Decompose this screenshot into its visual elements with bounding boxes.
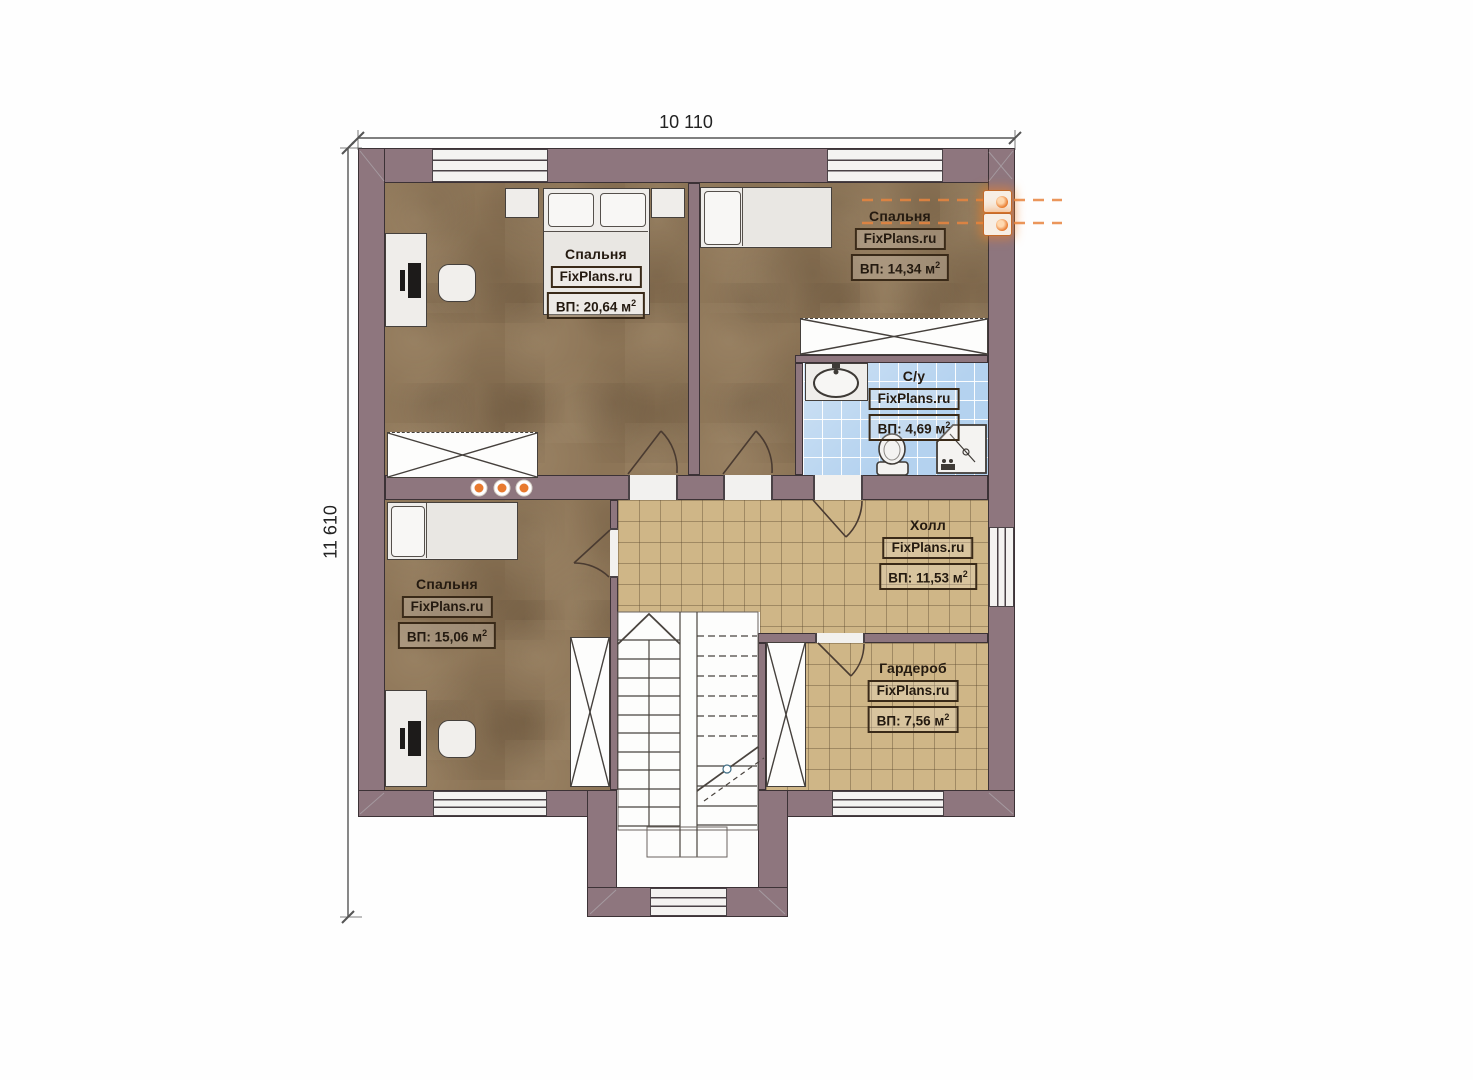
area-sup: 2: [963, 569, 968, 579]
radiator-icon: [983, 190, 1012, 213]
brand-box: FixPlans.ru: [402, 596, 493, 618]
brand-box: FixPlans.ru: [551, 266, 642, 288]
sink-counter: [805, 363, 868, 401]
area-box: ВП: 7,56 м2: [868, 706, 959, 733]
keyboard-icon: [400, 728, 405, 749]
brand-box: FixPlans.ru: [883, 537, 974, 559]
desk: [385, 690, 427, 787]
monitor-icon: [408, 263, 421, 298]
floor-plan-canvas: Спальня FixPlans.ru ВП: 20,64 м2 Спальня…: [0, 0, 1473, 1080]
area-sup: 2: [944, 712, 949, 722]
dimension-height-label: 11 610: [321, 505, 342, 559]
blanket: [742, 188, 831, 246]
wall-stairwell-right: [758, 643, 766, 790]
radiator-icon: [983, 213, 1012, 236]
dimension-width-label: 10 110: [659, 112, 713, 133]
room-label-bedroom-top-left: Спальня FixPlans.ru ВП: 20,64 м2: [547, 246, 645, 319]
wall-bathroom-top: [795, 355, 988, 363]
brand-box: FixPlans.ru: [868, 680, 959, 702]
area-text: ВП: 4,69 м: [878, 422, 946, 437]
brand-text: FixPlans.ru: [892, 540, 965, 555]
window-hall-right: [989, 527, 1014, 607]
floor-stair-landing: [617, 790, 758, 887]
wall-bedroom-separator: [688, 183, 700, 475]
area-text: ВП: 11,53 м: [888, 571, 962, 586]
pillow: [548, 193, 594, 227]
room-label-bedroom-bottom-left: Спальня FixPlans.ru ВП: 15,06 м2: [398, 576, 496, 649]
door-opening-bedroom-top-right: [723, 475, 773, 500]
room-title: Спальня: [416, 576, 478, 592]
pillow: [704, 191, 741, 245]
monitor-icon: [408, 721, 421, 756]
room-title: Спальня: [869, 208, 931, 224]
brand-text: FixPlans.ru: [411, 599, 484, 614]
door-opening-bathroom: [813, 475, 863, 500]
room-label-bedroom-top-right: Спальня FixPlans.ru ВП: 14,34 м2: [851, 208, 949, 281]
area-box: ВП: 4,69 м2: [869, 414, 960, 441]
area-sup: 2: [935, 260, 940, 270]
brand-box: FixPlans.ru: [855, 228, 946, 250]
room-title: Холл: [910, 517, 946, 533]
window-top-right: [827, 149, 943, 182]
room-title: Спальня: [565, 246, 627, 262]
window-bump: [650, 888, 727, 916]
area-sup: 2: [482, 628, 487, 638]
blanket: [426, 503, 517, 558]
room-title: С/у: [903, 368, 925, 384]
closet-cabinet: [766, 642, 806, 787]
pillow: [600, 193, 646, 227]
room-title: Гардероб: [879, 660, 947, 676]
brand-text: FixPlans.ru: [877, 683, 950, 698]
pillow: [391, 506, 425, 557]
room-label-hall: Холл FixPlans.ru ВП: 11,53 м2: [879, 517, 977, 590]
single-bed: [387, 502, 518, 560]
area-sup: 2: [945, 420, 950, 430]
area-box: ВП: 14,34 м2: [851, 254, 949, 281]
area-sup: 2: [631, 298, 636, 308]
door-opening-wardrobe: [815, 633, 865, 643]
door-opening-bedroom-top-left: [628, 475, 678, 500]
office-chair: [438, 264, 476, 302]
area-text: ВП: 20,64 м: [556, 300, 631, 315]
brand-text: FixPlans.ru: [864, 231, 937, 246]
single-bed: [700, 187, 832, 248]
wall-exterior-right: [988, 148, 1015, 817]
area-text: ВП: 15,06 м: [407, 630, 482, 645]
desk: [385, 233, 427, 327]
wall-corridor: [385, 475, 988, 500]
wardrobe-cabinet: [387, 432, 538, 478]
wall-exterior-left: [358, 148, 385, 817]
brand-text: FixPlans.ru: [560, 269, 633, 284]
window-top-left: [432, 149, 548, 182]
brand-text: FixPlans.ru: [878, 391, 951, 406]
nightstand-right: [651, 188, 685, 218]
nightstand-left: [505, 188, 539, 218]
area-box: ВП: 11,53 м2: [879, 563, 977, 590]
area-box: ВП: 20,64 м2: [547, 292, 645, 319]
door-opening-bedroom-bottom-left: [610, 528, 618, 578]
window-bottom-right: [832, 791, 944, 816]
area-box: ВП: 15,06 м2: [398, 622, 496, 649]
room-label-bathroom: С/у FixPlans.ru ВП: 4,69 м2: [869, 368, 960, 441]
wall-bathroom-left: [795, 363, 803, 475]
area-text: ВП: 14,34 м: [860, 262, 935, 277]
keyboard-icon: [400, 270, 405, 291]
floor-hall-left: [618, 500, 760, 612]
brand-box: FixPlans.ru: [869, 388, 960, 410]
room-label-wardrobe: Гардероб FixPlans.ru ВП: 7,56 м2: [868, 660, 959, 733]
wardrobe-cabinet: [800, 318, 988, 355]
office-chair: [438, 720, 476, 758]
window-bottom-left: [433, 791, 547, 816]
area-text: ВП: 7,56 м: [877, 714, 945, 729]
closet-cabinet: [570, 637, 610, 787]
